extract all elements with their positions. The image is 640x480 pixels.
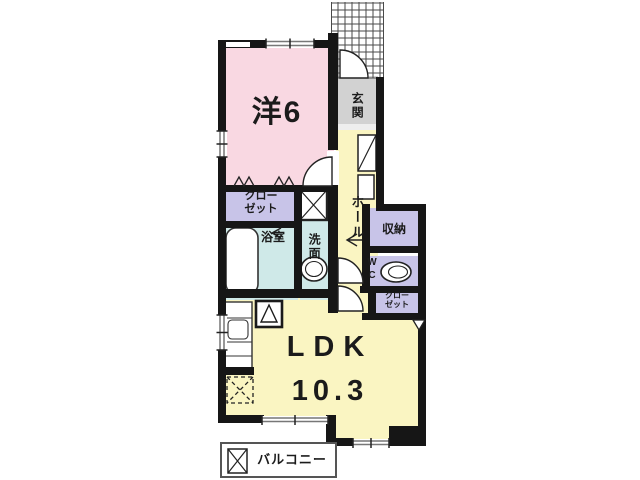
- storage-label: 収納: [368, 222, 420, 236]
- window-icon: [353, 438, 389, 448]
- hall-label: ホール: [349, 167, 364, 267]
- window-icon: [266, 39, 314, 49]
- washroom-label: 洗面: [307, 224, 321, 270]
- water-heater-icon: [228, 449, 247, 473]
- entrance-label: 玄関: [350, 83, 364, 129]
- stove-icon: [256, 301, 282, 327]
- toilet-icon: [381, 262, 411, 282]
- entrance-door-arc-icon: [340, 50, 368, 78]
- washer-pan-icon: [300, 190, 327, 220]
- ldk-size-label: 10.3: [250, 374, 410, 408]
- closet-ldk-label: クロー ゼット: [376, 291, 418, 310]
- window-icon: [217, 131, 228, 157]
- ldk-label: LDK: [250, 330, 410, 364]
- closet-main-label: クロー ゼット: [226, 190, 296, 216]
- bathroom-label: 浴室: [250, 230, 296, 244]
- western-room-label: 洋6: [222, 95, 332, 130]
- floor-plan: 洋6 玄関 ホール クロー ゼット 浴室 洗面 収納 W C クロー ゼット L…: [0, 0, 640, 480]
- wc-label: W C: [364, 257, 380, 282]
- window-icon: [262, 415, 328, 425]
- balcony-label: バルコニー: [250, 452, 334, 467]
- kitchen-counter-icon: [224, 302, 252, 368]
- window-icon: [217, 315, 228, 350]
